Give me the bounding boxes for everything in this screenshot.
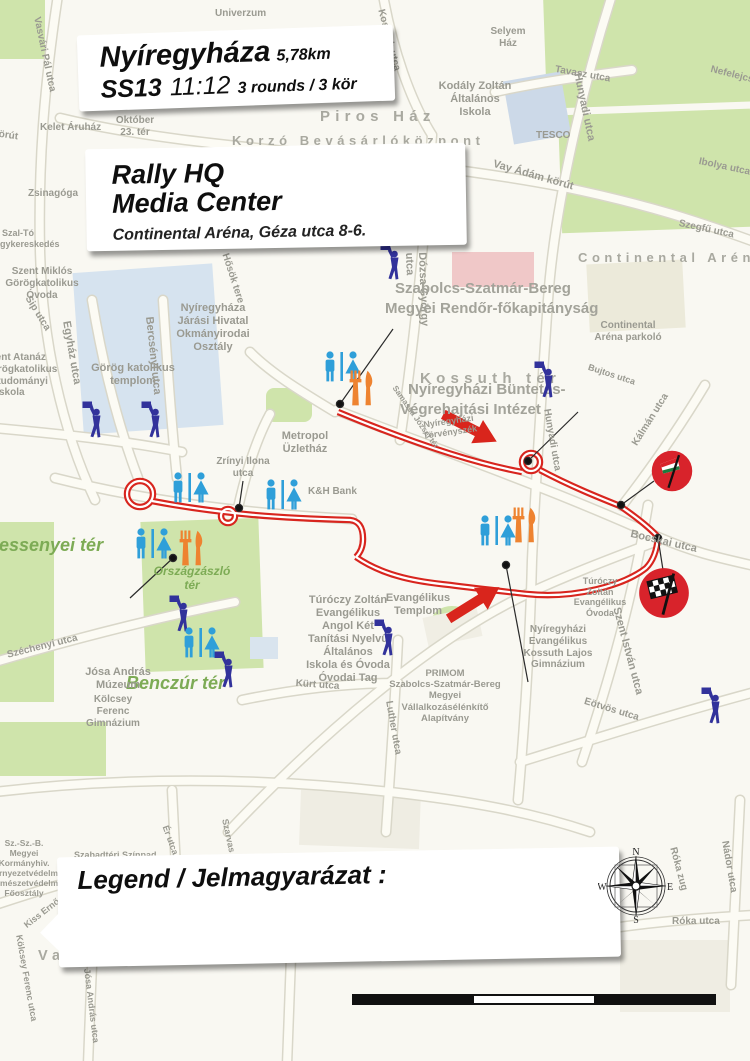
toilet-icon <box>263 479 303 510</box>
legend-title: Legend / Jelmagyarázat : <box>77 857 619 893</box>
finish-marker <box>637 566 691 620</box>
buffet-icon <box>348 370 375 406</box>
toilet-icon <box>170 472 210 503</box>
callout-dot <box>654 534 661 541</box>
buffet-marker <box>511 507 538 543</box>
legend-box: Legend / Jelmagyarázat : <box>57 847 621 968</box>
rally-map-page: UniverzumSelyem HázKodály Zoltán Általán… <box>0 0 750 1061</box>
toilet-marker <box>263 479 303 510</box>
compass-n: N <box>632 848 639 858</box>
qr-code <box>367 147 461 241</box>
road-closed-icon <box>82 401 104 439</box>
toilet-marker <box>170 472 210 503</box>
road-closed-icon <box>534 361 556 399</box>
toilet-marker <box>181 627 221 658</box>
buffet-marker <box>178 530 205 566</box>
road-closed-icon <box>701 687 723 725</box>
stage-title: Nyíregyháza <box>99 36 271 74</box>
callout-dot <box>524 457 531 464</box>
scale-segment <box>594 996 714 1003</box>
rally-hq-box: Rally HQ Media Center Continental Aréna,… <box>85 143 467 252</box>
roadclosed-marker <box>374 619 396 657</box>
road-closed-icon <box>380 243 402 281</box>
road-closed-icon <box>141 401 163 439</box>
stage-rounds: 3 rounds / 3 kör <box>237 76 357 97</box>
callout-dot <box>336 400 343 407</box>
stage-distance: 5,78km <box>276 46 331 65</box>
roadclosed-marker <box>82 401 104 439</box>
callout-dot <box>235 504 242 511</box>
roadclosed-marker <box>701 687 723 725</box>
road-closed-icon <box>374 619 396 657</box>
toilet-icon <box>181 627 221 658</box>
toilet-marker <box>133 528 173 559</box>
compass-s: S <box>633 915 639 924</box>
compass-rose: N E S W <box>598 848 674 924</box>
scale-bar <box>340 973 725 1013</box>
legend-row-2 <box>78 901 620 911</box>
stage-header-box: Nyíregyháza5,78km SS1311:123 rounds / 3 … <box>77 25 395 112</box>
compass-e: E <box>667 882 673 893</box>
scale-segment <box>474 996 594 1003</box>
scale-segment <box>354 996 474 1003</box>
callout-dot <box>617 501 624 508</box>
buffet-icon <box>511 507 538 543</box>
stage-time: 11:12 <box>169 71 231 101</box>
start-marker <box>650 449 694 493</box>
start-icon <box>650 449 694 493</box>
toilet-icon <box>133 528 173 559</box>
roadclosed-marker <box>534 361 556 399</box>
roadclosed-marker <box>141 401 163 439</box>
compass-w: W <box>598 882 607 893</box>
finish-icon <box>637 566 691 620</box>
roadclosed-marker <box>380 243 402 281</box>
buffet-icon <box>178 530 205 566</box>
scale-bar-segments <box>352 994 716 1005</box>
callout-dot <box>502 561 509 568</box>
buffet-marker <box>348 370 375 406</box>
stage-number: SS13 <box>100 74 162 104</box>
